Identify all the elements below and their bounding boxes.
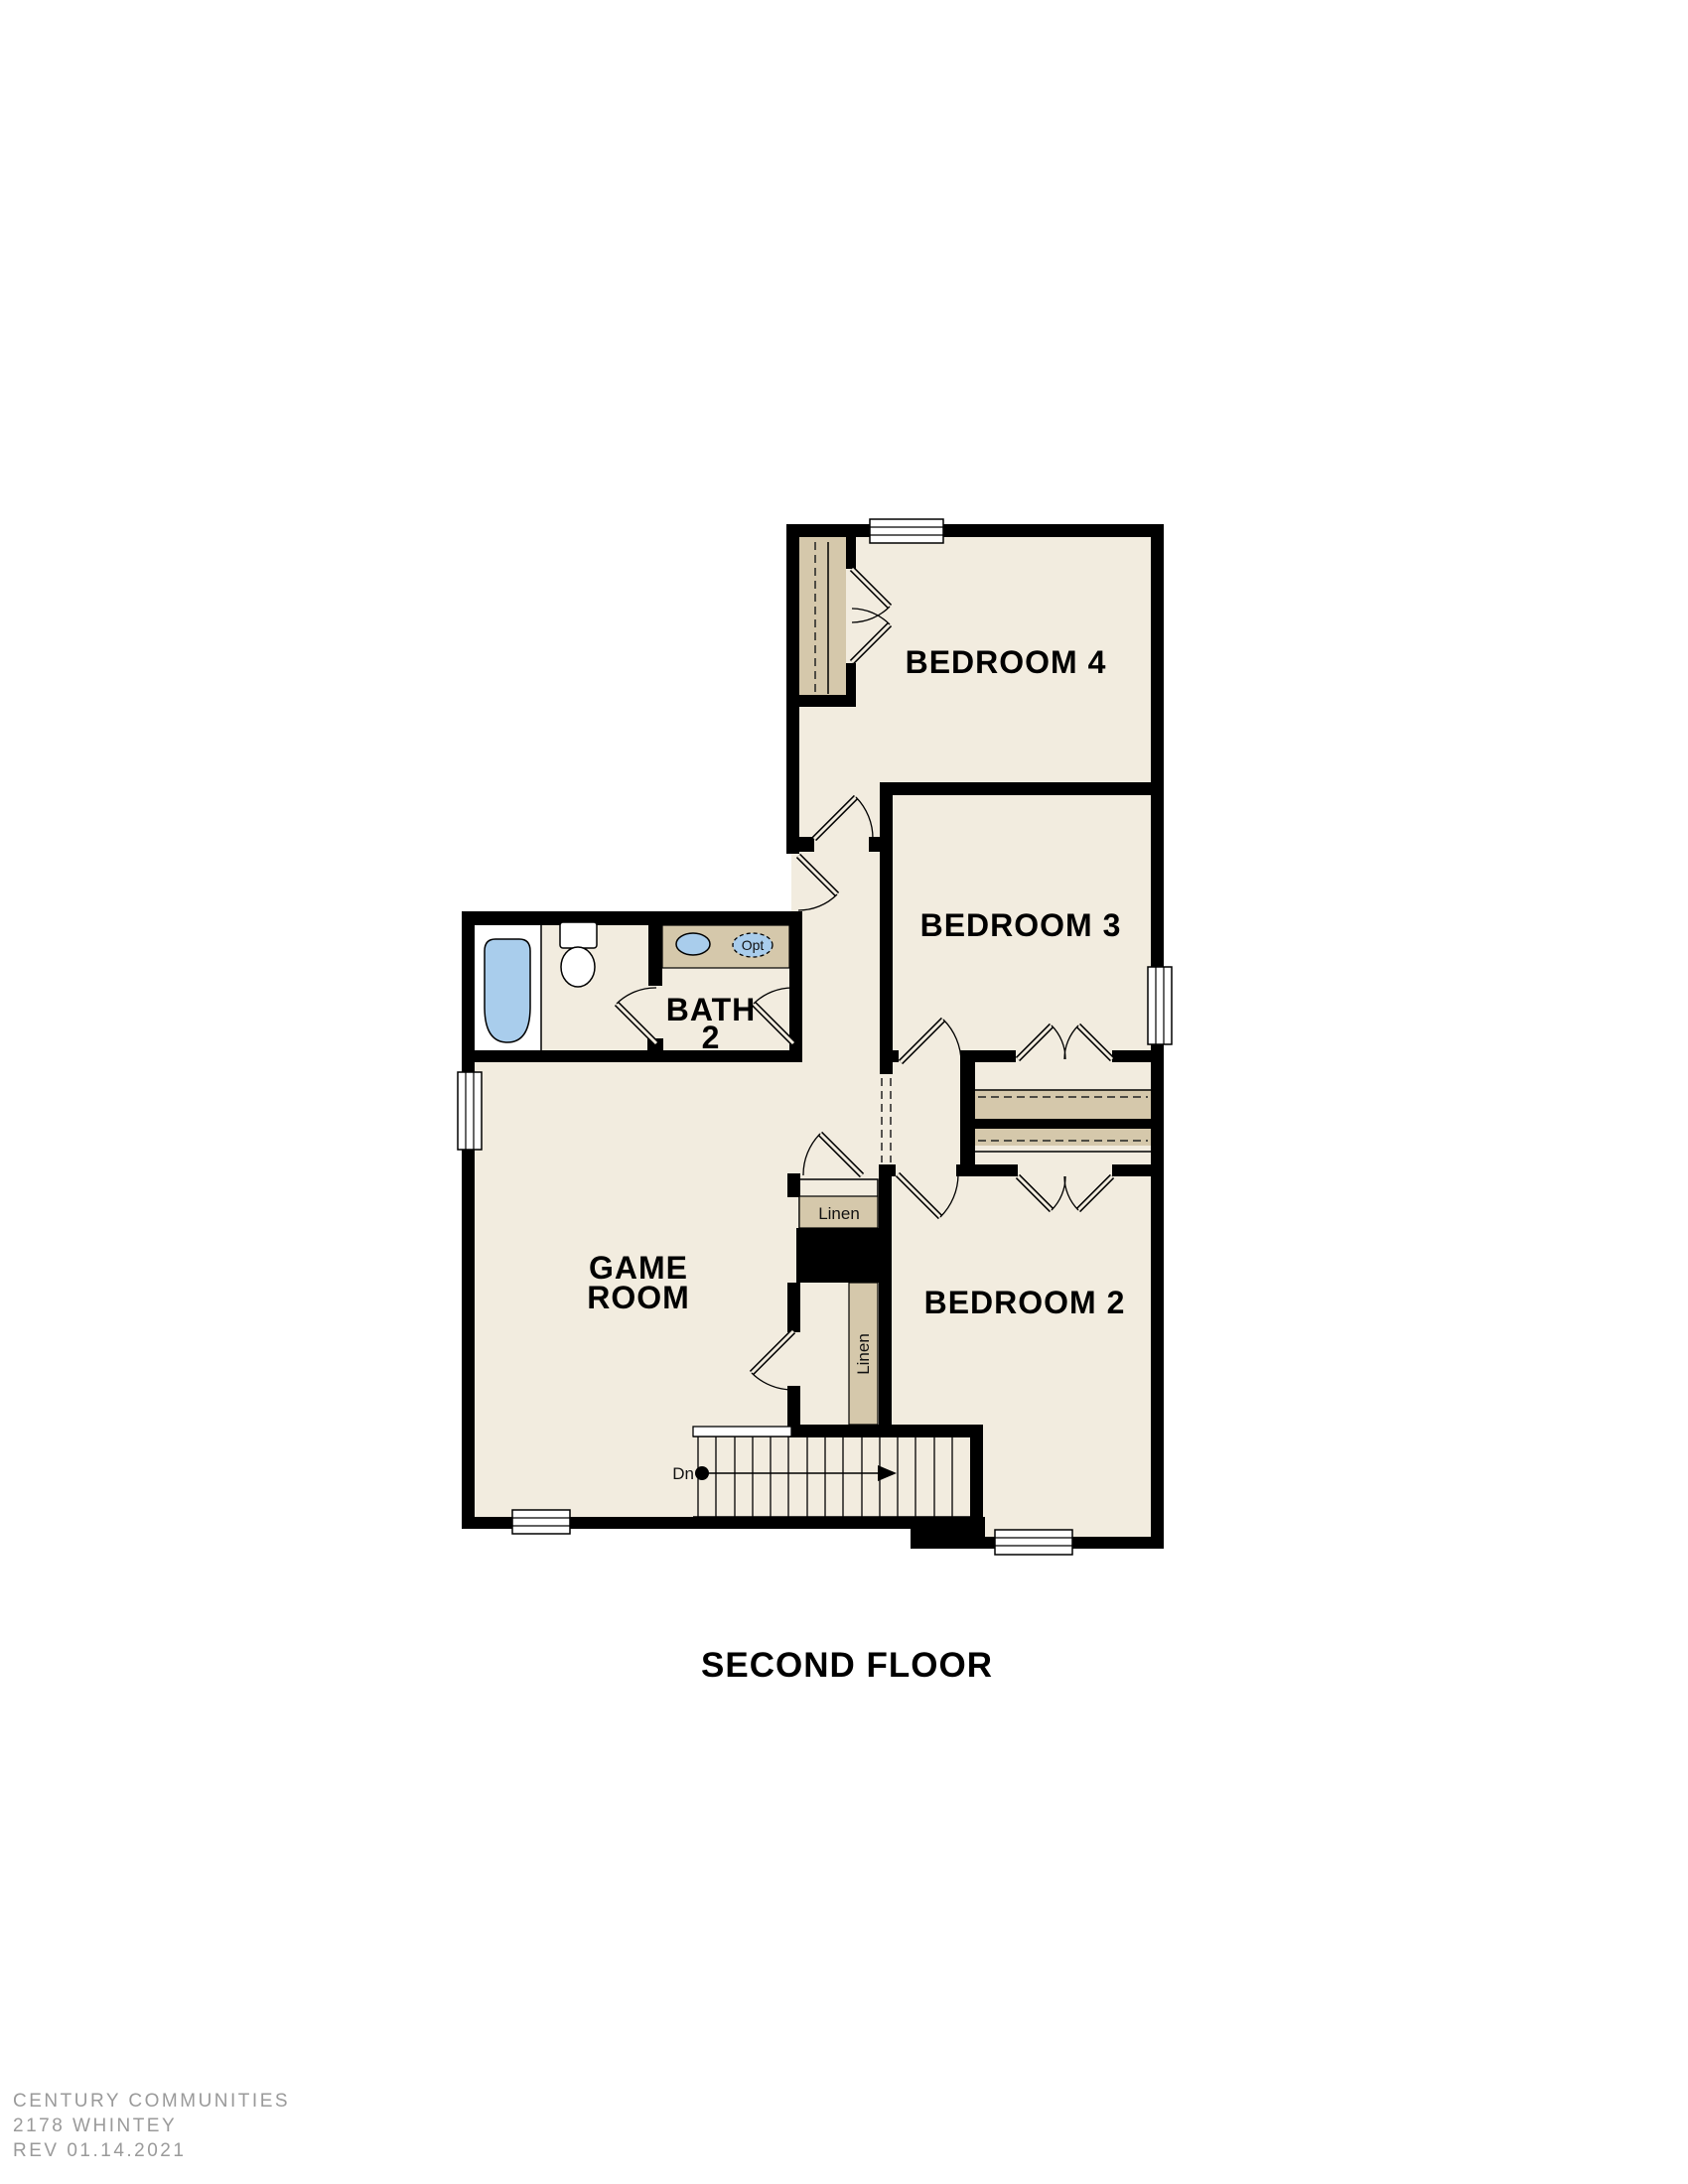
bedroom4-label: BEDROOM 4: [906, 644, 1107, 680]
title-block: CENTURY COMMUNITIES 2178 WHINTEY REV 01.…: [13, 2089, 290, 2163]
plan-title: SECOND FLOOR: [701, 1646, 993, 1685]
revision-date: REV 01.14.2021: [13, 2138, 290, 2163]
stair-handrail: [693, 1427, 791, 1436]
stairs-down-label: Dn: [672, 1464, 694, 1483]
window-bedroom4-top: [870, 519, 943, 543]
plan-number: 2178 WHINTEY: [13, 2114, 290, 2138]
bedroom3-label: BEDROOM 3: [920, 907, 1122, 943]
builder-name: CENTURY COMMUNITIES: [13, 2089, 290, 2114]
window-bedroom3-right: [1148, 967, 1172, 1044]
bathtub: [485, 939, 530, 1042]
toilet-tank: [560, 922, 597, 948]
bedroom2-closet-shelf: [975, 1129, 1151, 1146]
bedroom3-closet-shelf: [975, 1090, 1151, 1119]
optional-sink-label: Opt: [742, 937, 765, 953]
bedroom4-closet-shelf: [799, 537, 846, 695]
linen-horizontal-label: Linen: [818, 1204, 860, 1223]
floor-plan-sheet: BEDROOM 4 BEDROOM 3 BEDROOM 2 BATH 2 GAM…: [0, 0, 1688, 2184]
linen-vertical-label: Linen: [854, 1333, 873, 1375]
window-gameroom-left: [458, 1072, 482, 1150]
second-floor-plan: BEDROOM 4 BEDROOM 3 BEDROOM 2 BATH 2 GAM…: [0, 0, 1688, 2184]
chase-solid-fill: [796, 1228, 892, 1283]
bedroom2-label: BEDROOM 2: [924, 1285, 1126, 1320]
window-bedroom2-bottom: [995, 1530, 1072, 1555]
vanity-sink: [676, 933, 710, 955]
bath-label-line2: 2: [702, 1020, 721, 1055]
toilet-bowl: [561, 947, 595, 987]
gameroom-label-line2: ROOM: [587, 1280, 690, 1315]
window-gameroom-bottom: [512, 1510, 570, 1534]
